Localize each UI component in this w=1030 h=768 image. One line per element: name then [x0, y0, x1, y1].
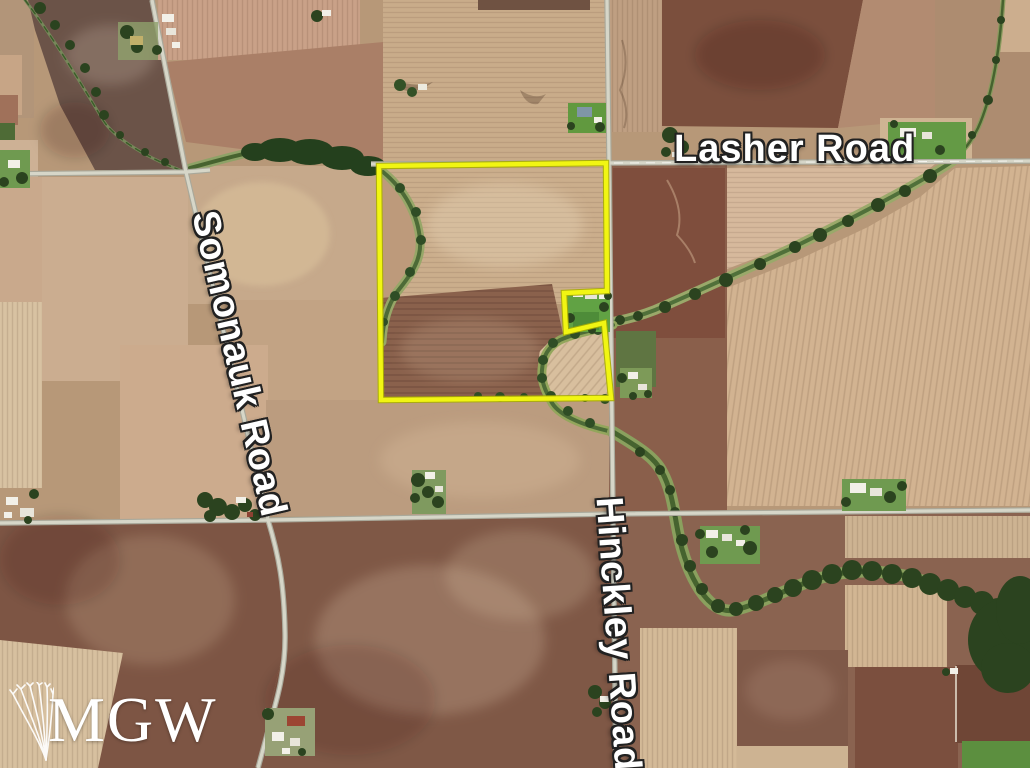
aerial-map: Lasher Road Somonauk Road Hinckley Road …	[0, 0, 1030, 768]
farmstead	[0, 150, 30, 188]
farmstead	[410, 470, 446, 514]
farmstead	[841, 479, 907, 511]
lasher-road-label: Lasher Road	[674, 130, 915, 168]
mgw-watermark: MGW	[6, 680, 246, 766]
mgw-watermark-text: MGW	[48, 688, 218, 752]
farmstead	[262, 708, 315, 756]
farmstead	[617, 368, 652, 400]
satellite-imagery	[0, 0, 1030, 768]
farmstead	[567, 103, 606, 133]
farmstead	[695, 525, 760, 564]
wheat-icon	[6, 682, 54, 762]
field-patchwork	[0, 0, 1030, 768]
